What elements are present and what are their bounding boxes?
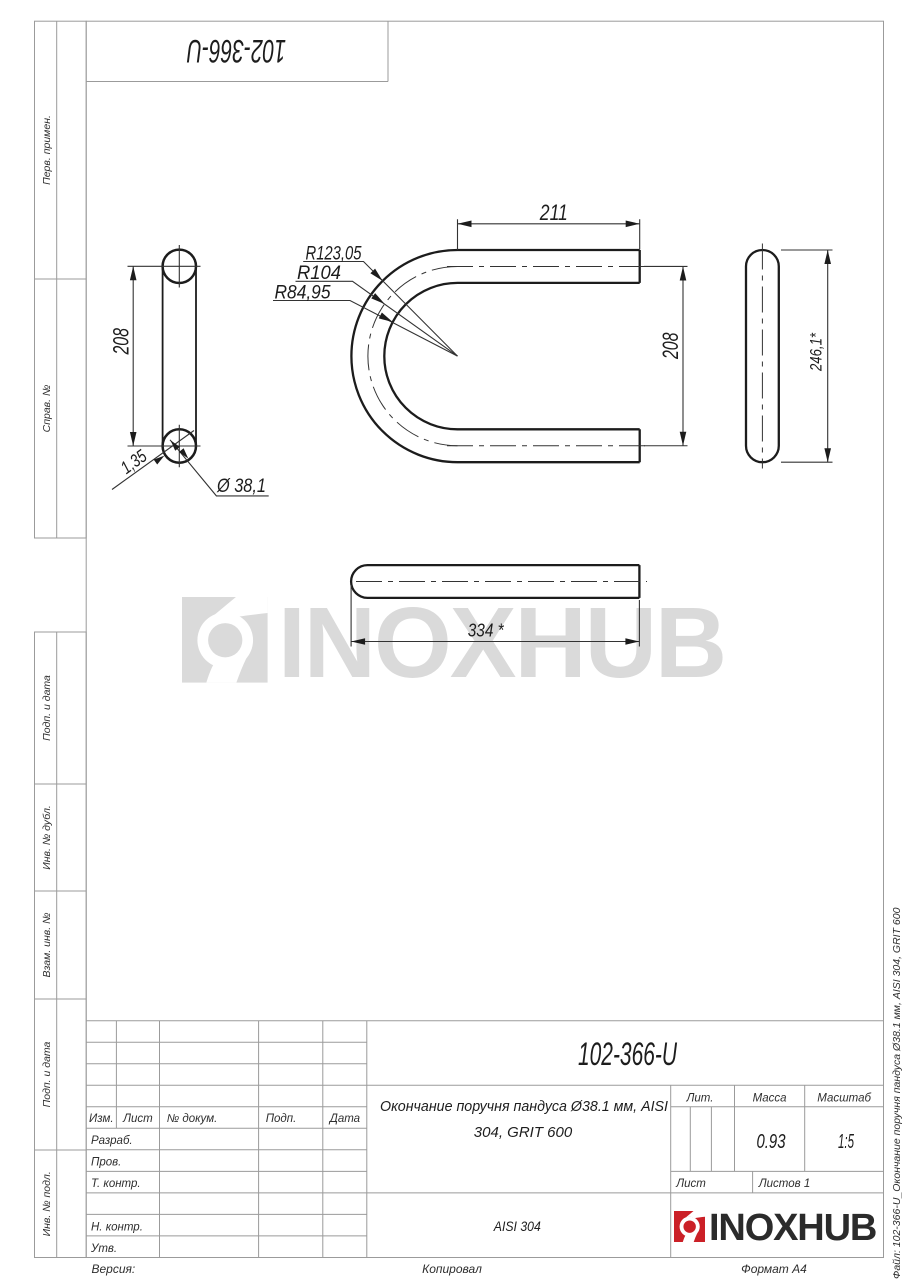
svg-text:Версия:: Версия: bbox=[92, 1262, 136, 1276]
svg-text:Лист: Лист bbox=[122, 1113, 153, 1125]
svg-text:R123,05: R123,05 bbox=[306, 244, 362, 265]
svg-text:Копировал: Копировал bbox=[422, 1262, 482, 1276]
svg-text:Лит.: Лит. bbox=[686, 1093, 714, 1105]
svg-text:Инв. № дубл.: Инв. № дубл. bbox=[41, 805, 53, 870]
svg-text:Масса: Масса bbox=[753, 1093, 787, 1105]
svg-text:INOXHUB: INOXHUB bbox=[709, 1207, 876, 1249]
svg-text:Утв.: Утв. bbox=[90, 1243, 117, 1255]
svg-text:Формат А4: Формат А4 bbox=[741, 1262, 807, 1276]
svg-text:208: 208 bbox=[658, 332, 683, 360]
svg-text:INOXHUB: INOXHUB bbox=[278, 587, 725, 699]
svg-text:Подп.: Подп. bbox=[266, 1113, 297, 1125]
svg-text:№ докум.: № докум. bbox=[167, 1113, 218, 1125]
svg-text:R104: R104 bbox=[297, 263, 341, 284]
svg-text:Масштаб: Масштаб bbox=[817, 1093, 871, 1105]
svg-text:Дата: Дата bbox=[328, 1113, 360, 1125]
svg-text:AISI 304: AISI 304 bbox=[493, 1218, 541, 1234]
svg-text:304, GRIT 600: 304, GRIT 600 bbox=[474, 1124, 573, 1141]
svg-text:0.93: 0.93 bbox=[757, 1131, 786, 1153]
svg-text:Подп. и дата: Подп. и дата bbox=[41, 1041, 53, 1107]
svg-text:Ø 38,1: Ø 38,1 bbox=[216, 476, 266, 497]
svg-text:208: 208 bbox=[109, 328, 134, 356]
svg-text:Взам. инв. №: Взам. инв. № bbox=[41, 913, 53, 978]
svg-text:334 *: 334 * bbox=[468, 620, 505, 641]
svg-text:Т. контр.: Т. контр. bbox=[91, 1178, 141, 1190]
svg-text:Изм.: Изм. bbox=[89, 1113, 114, 1125]
svg-text:Файл: 102-366-U_Окончание пору: Файл: 102-366-U_Окончание поручня пандус… bbox=[891, 907, 903, 1279]
svg-text:102-366-U: 102-366-U bbox=[186, 33, 286, 69]
svg-text:Лист: Лист bbox=[675, 1178, 706, 1190]
svg-text:211: 211 bbox=[539, 200, 568, 225]
svg-text:Подп. и дата: Подп. и дата bbox=[41, 675, 53, 741]
svg-text:Пров.: Пров. bbox=[91, 1157, 121, 1169]
svg-text:1:5: 1:5 bbox=[838, 1131, 854, 1153]
svg-text:Инв. № подл.: Инв. № подл. bbox=[41, 1171, 53, 1236]
svg-text:Окончание поручня пандуса Ø38.: Окончание поручня пандуса Ø38.1 мм, AISI bbox=[380, 1098, 668, 1115]
svg-text:246,1*: 246,1* bbox=[807, 332, 826, 372]
svg-text:Перв. примен.: Перв. примен. bbox=[41, 115, 53, 185]
svg-text:Справ. №: Справ. № bbox=[41, 385, 53, 433]
svg-text:R84,95: R84,95 bbox=[275, 283, 331, 304]
svg-text:Разраб.: Разраб. bbox=[91, 1135, 133, 1147]
svg-text:Н. контр.: Н. контр. bbox=[91, 1221, 143, 1233]
svg-text:Листов 1: Листов 1 bbox=[758, 1178, 810, 1190]
svg-text:102-366-U: 102-366-U bbox=[578, 1036, 678, 1072]
